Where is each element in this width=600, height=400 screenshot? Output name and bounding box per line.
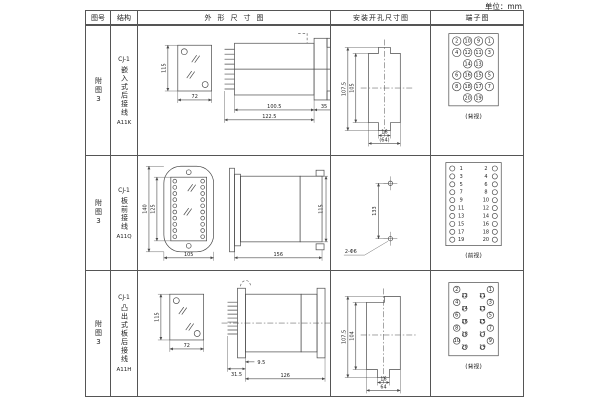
dim-side-height: 115 — [319, 204, 325, 213]
terminal-drawing-a11q: 1234567891011121314151617181920 (前视) — [432, 157, 523, 270]
svg-text:2: 2 — [455, 38, 458, 44]
dim-inner-height: 105 — [349, 83, 355, 92]
dimension-table: 图号 结构 外形尺寸图 安装开孔尺寸图 端子图 附图3 CJ-1 嵌入式后接线 … — [85, 10, 524, 397]
svg-text:10: 10 — [464, 38, 470, 44]
svg-text:13: 13 — [475, 61, 481, 67]
fig-no-a11h: 附图3 — [86, 271, 111, 396]
svg-text:17: 17 — [479, 332, 485, 338]
dim-overall-width: 64 — [380, 384, 386, 390]
svg-text:18: 18 — [461, 332, 467, 338]
svg-text:13: 13 — [479, 306, 485, 312]
svg-text:7: 7 — [459, 189, 462, 195]
terminal-view-label: (背视) — [465, 112, 481, 120]
terminal-grid-front-a11q: 1234567891011121314151617181920 — [449, 165, 497, 242]
structure-a11q: CJ-1 板前接线 A11Q — [111, 156, 138, 271]
svg-text:20: 20 — [461, 345, 467, 351]
document-page: 单位：mm 图号 结构 外形尺寸图 安装开孔尺寸图 端子图 附图3 CJ-1 嵌… — [0, 0, 600, 400]
svg-text:20: 20 — [464, 95, 470, 101]
svg-text:12: 12 — [461, 293, 467, 299]
svg-text:18: 18 — [464, 84, 470, 90]
svg-text:2: 2 — [484, 165, 487, 171]
svg-text:1: 1 — [459, 165, 462, 171]
header-fig-no: 图号 — [86, 11, 111, 26]
svg-text:1: 1 — [487, 38, 490, 44]
structure-model: CJ-1 — [118, 56, 130, 63]
dim-front-height: 115 — [154, 312, 160, 321]
outline-drawing-a11k: 115 72 100.5 35 — [138, 27, 330, 155]
header-install: 安装开孔尺寸图 — [331, 11, 431, 26]
terminal-drawing-a11h: 2121114143136165158187171020919 (背视) — [432, 272, 523, 395]
dim-slot-width: 16 — [380, 377, 386, 383]
svg-text:14: 14 — [461, 306, 467, 312]
svg-text:20: 20 — [482, 237, 488, 243]
dim-body-depth: 100.5 — [267, 103, 281, 109]
fig-no-a11k: 附图3 — [86, 26, 111, 156]
dim-outer-height: 140 — [142, 204, 148, 213]
outline-cell-a11h: 115 72 9.5 31.5 — [138, 271, 331, 396]
outline-drawing-a11q: 140 125 105 156 — [138, 157, 330, 270]
install-drawing-a11q: 133 2-Φ6 — [331, 157, 430, 270]
svg-text:18: 18 — [482, 229, 488, 235]
structure-code: A11H — [117, 367, 132, 373]
svg-text:8: 8 — [455, 84, 458, 90]
svg-text:13: 13 — [458, 213, 464, 219]
install-cell-a11q: 133 2-Φ6 — [331, 156, 431, 271]
svg-text:16: 16 — [461, 319, 467, 325]
structure-mounting: 嵌入式后接线 — [121, 66, 128, 117]
dim-inner-height: 104 — [349, 331, 355, 340]
svg-text:15: 15 — [479, 319, 485, 325]
svg-text:1: 1 — [488, 287, 491, 293]
svg-text:8: 8 — [455, 325, 458, 331]
dim-front-width: 72 — [192, 93, 198, 99]
dim-hole-spacing: 133 — [372, 206, 378, 215]
dim-pin-depth: 31.5 — [231, 372, 242, 378]
svg-text:4: 4 — [455, 49, 458, 55]
dim-flange-depth: 35 — [321, 103, 327, 109]
svg-text:9: 9 — [488, 338, 491, 344]
svg-text:10: 10 — [453, 338, 459, 344]
dim-body-length: 126 — [280, 373, 289, 379]
svg-text:3: 3 — [487, 49, 490, 55]
terminal-drawing-a11k: 2109141211314136161558181772019 (背视) — [432, 27, 523, 155]
dim-flange-offset: 9.5 — [257, 360, 265, 366]
dim-total-length: 156 — [274, 251, 283, 257]
terminal-view-label: (背视) — [465, 363, 481, 371]
svg-text:9: 9 — [476, 38, 479, 44]
svg-text:5: 5 — [459, 181, 462, 187]
svg-text:19: 19 — [458, 237, 464, 243]
structure-model: CJ-1 — [118, 294, 130, 301]
svg-text:5: 5 — [487, 72, 490, 78]
svg-text:6: 6 — [455, 72, 458, 78]
terminal-view-label: (前视) — [465, 251, 481, 259]
svg-text:14: 14 — [482, 213, 488, 219]
outline-cell-a11k: 115 72 100.5 35 — [138, 26, 331, 156]
header-outline: 外形尺寸图 — [138, 11, 331, 26]
svg-text:17: 17 — [475, 84, 481, 90]
terminal-grid-rear-a11k: 2109141211314136161558181772019 — [452, 36, 493, 101]
svg-text:7: 7 — [488, 325, 491, 331]
svg-text:4: 4 — [484, 173, 487, 179]
svg-text:19: 19 — [475, 95, 481, 101]
svg-text:12: 12 — [482, 205, 488, 211]
dim-overall-width: (64) — [379, 137, 389, 143]
structure-a11k: CJ-1 嵌入式后接线 A11K — [111, 26, 138, 156]
dim-hole-label: 2-Φ6 — [345, 249, 357, 255]
terminal-grid-rear-a11h: 2121114143136165158187171020919 — [453, 286, 493, 350]
outline-cell-a11q: 140 125 105 156 — [138, 156, 331, 271]
svg-text:16: 16 — [482, 221, 488, 227]
install-cell-a11h: 107.5 104 16 64 — [331, 271, 431, 396]
svg-text:9: 9 — [459, 197, 462, 203]
svg-text:11: 11 — [479, 293, 485, 299]
terminal-cell-a11q: 1234567891011121314151617181920 (前视) — [431, 156, 523, 271]
svg-text:8: 8 — [484, 189, 487, 195]
structure-mounting: 凸出式板后接线 — [121, 304, 128, 364]
fig-no-a11q: 附图3 — [86, 156, 111, 271]
terminal-cell-a11h: 2121114143136165158187171020919 (背视) — [431, 271, 523, 396]
screw-column-right — [201, 179, 205, 238]
structure-code: A11Q — [116, 234, 131, 240]
svg-text:14: 14 — [464, 61, 470, 67]
outline-drawing-a11h: 115 72 9.5 31.5 — [138, 272, 330, 395]
svg-text:12: 12 — [464, 49, 470, 55]
svg-text:16: 16 — [464, 72, 470, 78]
svg-text:3: 3 — [459, 173, 462, 179]
install-drawing-a11k: 107.5 105 16 (64) — [331, 27, 430, 155]
header-structure: 结构 — [111, 11, 138, 26]
dim-slot-width: 16 — [381, 129, 387, 135]
terminal-cell-a11k: 2109141211314136161558181772019 (背视) — [431, 26, 523, 156]
svg-text:11: 11 — [458, 205, 464, 211]
dim-front-width: 105 — [184, 251, 193, 257]
svg-text:15: 15 — [475, 72, 481, 78]
dim-outer-height: 107.5 — [341, 81, 347, 95]
dim-total-depth: 122.5 — [262, 113, 276, 119]
dim-outer-height: 107.5 — [341, 330, 347, 344]
svg-text:5: 5 — [488, 312, 491, 318]
structure-model: CJ-1 — [118, 187, 130, 194]
svg-text:6: 6 — [455, 312, 458, 318]
svg-text:6: 6 — [484, 181, 487, 187]
svg-text:2: 2 — [455, 287, 458, 293]
install-cell-a11k: 107.5 105 16 (64) — [331, 26, 431, 156]
svg-text:17: 17 — [458, 229, 464, 235]
structure-code: A11K — [117, 120, 131, 126]
svg-text:7: 7 — [487, 84, 490, 90]
svg-text:15: 15 — [458, 221, 464, 227]
header-terminal: 端子图 — [431, 11, 523, 26]
structure-mounting: 板前接线 — [121, 197, 128, 231]
install-drawing-a11h: 107.5 104 16 64 — [331, 272, 430, 395]
dim-front-height: 115 — [161, 63, 167, 72]
svg-text:10: 10 — [482, 197, 488, 203]
dim-front-width: 72 — [184, 343, 190, 349]
svg-text:3: 3 — [488, 300, 491, 306]
dim-inner-height: 125 — [150, 204, 156, 213]
svg-text:4: 4 — [455, 300, 458, 306]
svg-text:11: 11 — [475, 49, 481, 55]
svg-text:19: 19 — [479, 345, 485, 351]
screw-column-left — [173, 179, 177, 238]
structure-a11h: CJ-1 凸出式板后接线 A11H — [111, 271, 138, 396]
